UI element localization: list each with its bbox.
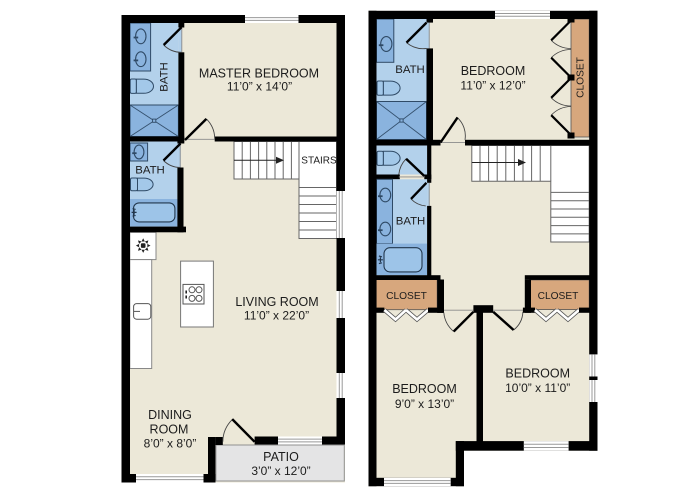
svg-text:MASTER BEDROOM: MASTER BEDROOM [199,67,319,81]
svg-text:11’0” x 14’0”: 11’0” x 14’0” [227,80,292,94]
svg-text:11’0” x 22’0”: 11’0” x 22’0” [244,309,309,323]
svg-text:BATH: BATH [396,216,426,228]
svg-text:CLOSET: CLOSET [576,57,587,98]
svg-text:9’0” x 13’0”: 9’0” x 13’0” [395,397,454,411]
svg-text:BATH: BATH [135,165,165,177]
svg-text:PATIO: PATIO [263,450,299,464]
svg-text:11’0” x 12’0”: 11’0” x 12’0” [460,79,525,93]
svg-text:3’0” x 12’0”: 3’0” x 12’0” [251,464,310,478]
svg-text:ROOM: ROOM [150,423,189,437]
svg-text:BEDROOM: BEDROOM [505,367,570,381]
svg-text:LIVING ROOM: LIVING ROOM [235,295,318,309]
svg-text:DINING: DINING [148,408,192,422]
svg-text:STAIRS: STAIRS [301,156,337,167]
svg-text:BATH: BATH [159,62,171,92]
svg-text:BEDROOM: BEDROOM [461,64,526,78]
svg-text:CLOSET: CLOSET [538,291,579,302]
svg-text:8’0” x 8’0”: 8’0” x 8’0” [144,437,197,451]
svg-text:10’0” x 11’0”: 10’0” x 11’0” [505,381,570,395]
svg-text:BATH: BATH [395,64,425,76]
svg-text:CLOSET: CLOSET [386,291,427,302]
svg-text:BEDROOM: BEDROOM [392,382,457,396]
